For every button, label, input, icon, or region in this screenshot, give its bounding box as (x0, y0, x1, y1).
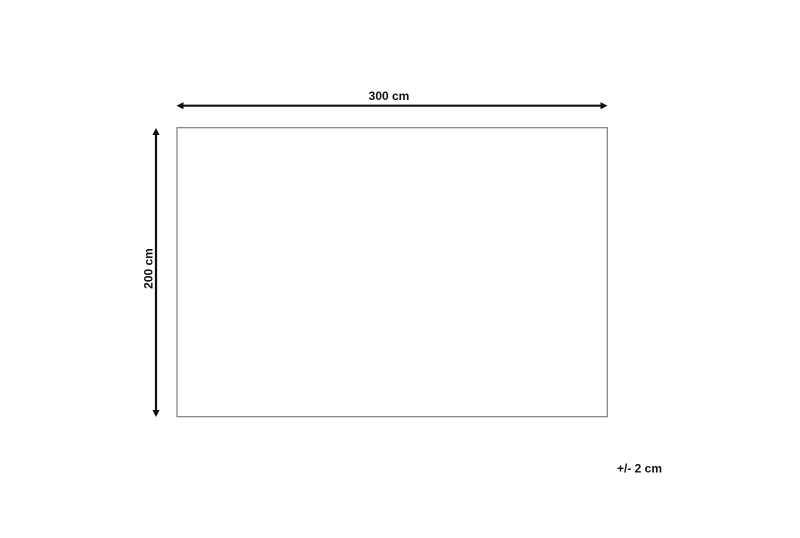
svg-text:+/- 2 cm: +/- 2 cm (617, 462, 662, 476)
svg-text:300 cm: 300 cm (369, 89, 410, 103)
svg-text:200 cm: 200 cm (142, 248, 156, 289)
